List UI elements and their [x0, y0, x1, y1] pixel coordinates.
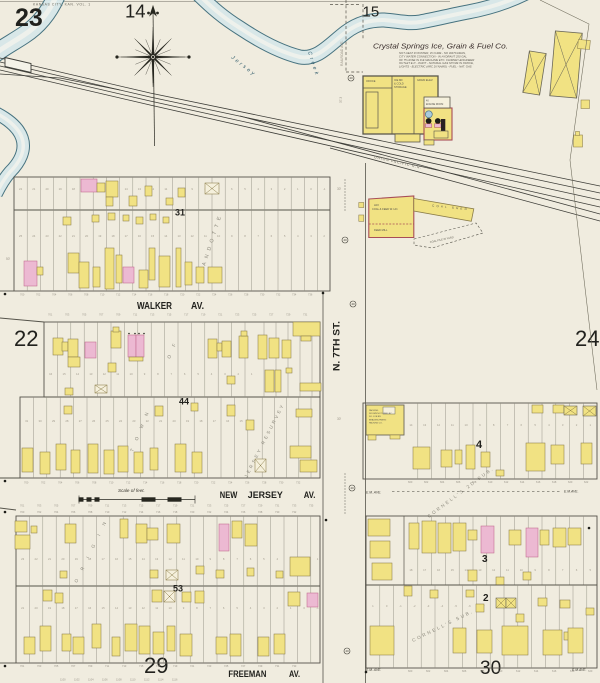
svg-text:3: 3 [482, 554, 488, 565]
svg-text:E.M.AVE.: E.M.AVE. [564, 490, 579, 494]
svg-text:718: 718 [177, 481, 182, 485]
svg-text:715: 715 [139, 504, 144, 508]
svg-text:710: 710 [100, 293, 105, 297]
svg-text:726: 726 [228, 293, 233, 297]
svg-text:Crystal Springs Ice, Grain & F: Crystal Springs Ice, Grain & Fuel Co. [373, 42, 508, 51]
svg-text:37.3: 37.3 [339, 97, 343, 103]
svg-text:1102: 1102 [74, 678, 80, 682]
svg-text:730: 730 [260, 293, 265, 297]
svg-text:22: 22 [14, 326, 38, 351]
svg-text:11: 11 [204, 234, 207, 238]
svg-text:711: 711 [105, 664, 110, 668]
svg-text:723: 723 [235, 313, 240, 317]
svg-text:600: 600 [408, 480, 413, 484]
svg-text:719: 719 [201, 313, 206, 317]
svg-text:17: 17 [125, 234, 129, 238]
svg-text:14: 14 [76, 372, 80, 376]
svg-text:ENGINE ROOM: ENGINE ROOM [426, 103, 443, 106]
svg-text:706: 706 [75, 481, 80, 485]
svg-text:FEED MILL: FEED MILL [374, 228, 388, 232]
svg-text:10: 10 [169, 606, 173, 610]
svg-text:11: 11 [116, 372, 119, 376]
svg-text:20: 20 [35, 606, 39, 610]
svg-text:716: 716 [160, 481, 165, 485]
svg-text:713: 713 [150, 313, 155, 317]
svg-text:15: 15 [451, 568, 455, 572]
svg-text:WALKER: WALKER [137, 301, 173, 312]
svg-text:19: 19 [75, 557, 79, 561]
svg-text:13: 13 [155, 557, 159, 561]
svg-text:731: 731 [303, 313, 308, 317]
svg-text:604: 604 [440, 480, 445, 484]
svg-text:30: 30 [39, 419, 43, 423]
svg-text:721: 721 [218, 313, 223, 317]
svg-text:734: 734 [292, 293, 297, 297]
svg-text:15: 15 [63, 372, 67, 376]
svg-text:701: 701 [20, 664, 25, 668]
svg-text:719: 719 [173, 504, 178, 508]
svg-text:728: 728 [258, 510, 263, 514]
svg-text:19: 19 [186, 419, 190, 423]
svg-text:31: 31 [25, 419, 29, 423]
svg-text:13: 13 [177, 234, 181, 238]
svg-text:711: 711 [133, 313, 138, 317]
svg-text:14: 14 [125, 1, 146, 22]
svg-text:18: 18 [409, 568, 413, 572]
svg-text:620: 620 [568, 480, 573, 484]
svg-text:700: 700 [20, 293, 25, 297]
svg-text:701: 701 [48, 313, 53, 317]
svg-text:712: 712 [126, 481, 131, 485]
svg-text:10: 10 [217, 234, 221, 238]
svg-text:FREEMAN: FREEMAN [228, 669, 266, 679]
svg-text:20: 20 [45, 187, 49, 191]
svg-text:705: 705 [54, 664, 59, 668]
svg-text:602: 602 [426, 669, 431, 673]
svg-text:24: 24 [32, 234, 36, 238]
svg-text:702: 702 [36, 293, 41, 297]
svg-text:18: 18 [72, 187, 76, 191]
svg-text:724: 724 [212, 293, 217, 297]
svg-text:727: 727 [241, 504, 246, 508]
svg-text:COAL & FEED W. HO.: COAL & FEED W. HO. [372, 207, 398, 211]
svg-text:13: 13 [138, 187, 142, 191]
svg-text:715: 715 [167, 313, 172, 317]
svg-text:732: 732 [296, 481, 301, 485]
svg-text:2: 2 [483, 593, 489, 604]
svg-text:714: 714 [132, 293, 137, 297]
svg-text:-5: -5 [454, 604, 457, 608]
svg-text:14: 14 [125, 187, 129, 191]
svg-text:710: 710 [109, 481, 114, 485]
svg-text:22: 22 [19, 187, 23, 191]
svg-text:729: 729 [286, 313, 291, 317]
svg-text:E.M.AVE.: E.M.AVE. [572, 668, 587, 672]
svg-text:N. 7TH ST.: N. 7TH ST. [332, 321, 342, 371]
svg-text:OFFICE: OFFICE [366, 79, 376, 83]
svg-text:27: 27 [79, 419, 83, 423]
svg-text:727: 727 [269, 313, 274, 317]
svg-text:14: 14 [142, 557, 146, 561]
svg-text:12: 12 [169, 557, 173, 561]
svg-text:723: 723 [207, 504, 212, 508]
svg-text:707: 707 [99, 313, 104, 317]
svg-text:618: 618 [552, 480, 557, 484]
svg-text:717: 717 [184, 313, 189, 317]
svg-text:15: 15 [128, 557, 132, 561]
svg-text:11: 11 [155, 606, 158, 610]
svg-text:17: 17 [102, 557, 106, 561]
svg-text:1100: 1100 [60, 678, 66, 682]
svg-text:722: 722 [211, 481, 216, 485]
svg-text:11: 11 [451, 423, 454, 427]
svg-text:730: 730 [275, 510, 280, 514]
svg-text:22: 22 [59, 234, 63, 238]
svg-text:715: 715 [139, 664, 144, 668]
svg-text:21: 21 [21, 606, 25, 610]
svg-text:ROOMS NOT USED BY: ROOMS NOT USED BY [369, 413, 392, 415]
svg-text:732: 732 [292, 510, 297, 514]
svg-text:710: 710 [105, 510, 110, 514]
svg-text:19: 19 [98, 234, 102, 238]
svg-text:616: 616 [552, 669, 557, 673]
svg-text:PACKING CO.: PACKING CO. [369, 421, 383, 424]
svg-text:721: 721 [190, 504, 195, 508]
svg-text:616: 616 [536, 480, 541, 484]
svg-text:23: 23 [21, 557, 25, 561]
svg-text:& COLD: & COLD [394, 81, 404, 85]
svg-text:718: 718 [164, 293, 169, 297]
svg-text:11: 11 [182, 557, 185, 561]
svg-text:12: 12 [191, 234, 195, 238]
svg-text:19: 19 [59, 187, 63, 191]
svg-text:1104: 1104 [88, 678, 94, 682]
svg-text:29: 29 [52, 419, 56, 423]
svg-text:12: 12 [103, 372, 107, 376]
svg-text:716: 716 [148, 293, 153, 297]
svg-text:14: 14 [409, 423, 413, 427]
svg-text:703: 703 [37, 664, 42, 668]
svg-text:11: 11 [506, 568, 509, 572]
svg-text:AV.: AV. [289, 669, 300, 679]
svg-text:705: 705 [82, 313, 87, 317]
svg-text:17: 17 [75, 606, 79, 610]
svg-text:726: 726 [241, 510, 246, 514]
svg-text:21: 21 [159, 419, 163, 423]
svg-text:10: 10 [465, 423, 469, 427]
svg-text:1116: 1116 [172, 678, 178, 682]
svg-text:735: 735 [309, 504, 314, 508]
svg-text:26: 26 [92, 419, 96, 423]
svg-text:709: 709 [116, 313, 121, 317]
svg-text:608: 608 [472, 480, 477, 484]
svg-text:728: 728 [244, 293, 249, 297]
svg-text:732: 732 [276, 293, 281, 297]
svg-text:725: 725 [224, 504, 229, 508]
svg-text:18: 18 [111, 234, 115, 238]
svg-text:733: 733 [292, 504, 297, 508]
svg-text:612: 612 [504, 480, 509, 484]
svg-text:AV.: AV. [304, 490, 316, 500]
svg-text:717: 717 [156, 664, 161, 668]
svg-text:1112: 1112 [144, 678, 150, 682]
svg-text:614: 614 [520, 480, 525, 484]
svg-text:30’: 30’ [337, 187, 342, 191]
svg-text:E.M. AVE.: E.M. AVE. [366, 668, 381, 672]
svg-text:40: 40 [350, 486, 354, 490]
svg-text:15: 15 [363, 4, 380, 21]
svg-text:JERSEY: JERSEY [248, 490, 283, 500]
svg-text:729: 729 [258, 664, 263, 668]
svg-text:736: 736 [308, 293, 313, 297]
svg-text:717: 717 [156, 504, 161, 508]
svg-text:707: 707 [71, 504, 76, 508]
svg-text:1114: 1114 [158, 678, 164, 682]
svg-text:712: 712 [116, 293, 121, 297]
svg-text:730: 730 [279, 481, 284, 485]
svg-text:40: 40 [343, 238, 347, 242]
svg-text:709: 709 [88, 664, 93, 668]
svg-text:13: 13 [128, 606, 132, 610]
svg-text:12: 12 [142, 606, 146, 610]
svg-text:44: 44 [179, 397, 189, 407]
svg-text:604: 604 [444, 669, 449, 673]
svg-text:729: 729 [258, 504, 263, 508]
svg-text:ICE MF: ICE MF [394, 78, 403, 82]
svg-text:HAY: HAY [374, 203, 379, 207]
svg-text:709: 709 [88, 504, 93, 508]
svg-text:716: 716 [156, 510, 161, 514]
svg-text:4: 4 [476, 439, 483, 451]
svg-text:702: 702 [37, 510, 42, 514]
svg-text:718: 718 [173, 510, 178, 514]
svg-text:13: 13 [423, 423, 427, 427]
svg-text:15: 15 [102, 606, 106, 610]
svg-text:719: 719 [173, 664, 178, 668]
svg-text:704: 704 [54, 510, 59, 514]
svg-text:-1: -1 [323, 187, 326, 191]
svg-text:708: 708 [88, 510, 93, 514]
svg-text:700: 700 [20, 510, 25, 514]
svg-text:712: 712 [122, 510, 127, 514]
svg-text:16: 16 [49, 372, 53, 376]
svg-text:12: 12 [437, 423, 441, 427]
svg-text:721: 721 [190, 664, 195, 668]
svg-text:731: 731 [275, 664, 280, 668]
svg-text:40: 40 [349, 76, 353, 80]
svg-text:18: 18 [61, 606, 65, 610]
svg-text:724: 724 [228, 481, 233, 485]
svg-text:SO. JOE BR.: SO. JOE BR. [369, 416, 382, 418]
svg-text:24: 24 [575, 326, 599, 351]
svg-text:21: 21 [32, 187, 36, 191]
svg-text:-2: -2 [413, 604, 416, 608]
svg-text:600: 600 [408, 669, 413, 673]
svg-text:30’: 30’ [337, 417, 342, 421]
svg-text:15: 15 [151, 234, 155, 238]
svg-text:614: 614 [534, 669, 539, 673]
svg-text:-3: -3 [427, 604, 430, 608]
svg-text:622: 622 [584, 480, 589, 484]
svg-text:28: 28 [65, 419, 69, 423]
svg-text:1110: 1110 [130, 678, 136, 682]
svg-text:25: 25 [106, 419, 110, 423]
svg-text:705: 705 [54, 504, 59, 508]
svg-text:NEW: NEW [220, 490, 238, 500]
svg-text:722: 722 [207, 510, 212, 514]
svg-text:720: 720 [194, 481, 199, 485]
svg-text:14: 14 [164, 234, 168, 238]
svg-text:24: 24 [119, 419, 123, 423]
svg-text:17: 17 [423, 568, 427, 572]
svg-text:Scale of feet.: Scale of feet. [118, 488, 145, 493]
svg-text:LIGHTS - ELECTRIC (ARC DYNAMO): LIGHTS - ELECTRIC (ARC DYNAMO) - FUEL - … [399, 65, 472, 69]
svg-text:16: 16 [88, 606, 92, 610]
svg-text:PACKING: PACKING [369, 409, 379, 412]
svg-text:20: 20 [85, 234, 89, 238]
svg-text:13: 13 [478, 568, 482, 572]
svg-text:21: 21 [48, 557, 52, 561]
svg-text:BRAUNSCHWEIG: BRAUNSCHWEIG [369, 418, 387, 421]
svg-text:10: 10 [195, 557, 199, 561]
svg-text:GRAIN ELEV.: GRAIN ELEV. [417, 78, 433, 82]
svg-text:706: 706 [71, 510, 76, 514]
svg-text:17: 17 [213, 419, 217, 423]
svg-text:731: 731 [275, 504, 280, 508]
svg-text:11: 11 [164, 187, 167, 191]
svg-text:30: 30 [480, 658, 501, 679]
svg-text:23: 23 [15, 4, 43, 32]
svg-text:16: 16 [115, 557, 119, 561]
svg-text:E.M. AVE.: E.M. AVE. [366, 491, 381, 495]
svg-text:610: 610 [498, 669, 503, 673]
svg-text:707: 707 [71, 664, 76, 668]
svg-text:602: 602 [424, 480, 429, 484]
svg-text:606: 606 [462, 669, 467, 673]
svg-text:723: 723 [207, 664, 212, 668]
svg-text:16: 16 [138, 234, 142, 238]
svg-text:704: 704 [52, 293, 57, 297]
svg-text:20: 20 [173, 419, 177, 423]
svg-text:728: 728 [262, 481, 267, 485]
svg-text:19: 19 [48, 606, 52, 610]
svg-text:714: 714 [143, 481, 148, 485]
svg-text:RAILROAD AVE.: RAILROAD AVE. [340, 40, 344, 66]
svg-text:1108: 1108 [116, 678, 122, 682]
svg-text:22: 22 [35, 557, 39, 561]
svg-text:720: 720 [180, 293, 185, 297]
svg-text:12: 12 [492, 568, 496, 572]
svg-text:15: 15 [240, 419, 244, 423]
svg-text:14: 14 [115, 606, 119, 610]
svg-text:711: 711 [105, 504, 110, 508]
svg-text:18: 18 [199, 419, 203, 423]
svg-text:40: 40 [351, 302, 355, 306]
svg-text:20: 20 [61, 557, 65, 561]
svg-text:23: 23 [132, 419, 136, 423]
svg-text:31: 31 [175, 208, 185, 218]
svg-text:620: 620 [588, 669, 593, 673]
svg-text:16: 16 [226, 419, 230, 423]
svg-text:722: 722 [196, 293, 201, 297]
svg-text:606: 606 [456, 480, 461, 484]
svg-text:704: 704 [58, 481, 63, 485]
svg-text:-4: -4 [441, 604, 444, 608]
svg-text:725: 725 [252, 313, 257, 317]
svg-text:720: 720 [190, 510, 195, 514]
svg-text:10: 10 [130, 372, 134, 376]
svg-text:726: 726 [245, 481, 250, 485]
svg-text:-1: -1 [399, 604, 402, 608]
svg-text:-6: -6 [468, 604, 471, 608]
svg-text:725: 725 [224, 664, 229, 668]
svg-text:713: 713 [122, 664, 127, 668]
svg-text:AV.: AV. [191, 301, 204, 312]
svg-text:713: 713 [122, 504, 127, 508]
svg-text:610: 610 [488, 480, 493, 484]
svg-text:701: 701 [20, 504, 25, 508]
svg-text:714: 714 [139, 510, 144, 514]
svg-text:10: 10 [520, 568, 524, 572]
svg-text:STORAGE: STORAGE [394, 85, 407, 89]
svg-text:708: 708 [84, 293, 89, 297]
svg-text:25: 25 [19, 234, 23, 238]
svg-text:727: 727 [241, 664, 246, 668]
svg-text:14: 14 [465, 568, 469, 572]
svg-text:608: 608 [480, 669, 485, 673]
svg-text:702: 702 [41, 481, 46, 485]
svg-text:13: 13 [89, 372, 93, 376]
svg-text:50’: 50’ [6, 257, 11, 261]
svg-text:708: 708 [92, 481, 97, 485]
svg-text:700: 700 [24, 481, 29, 485]
svg-text:40: 40 [345, 649, 349, 653]
svg-text:733: 733 [292, 664, 297, 668]
svg-text:703: 703 [65, 313, 70, 317]
svg-text:703: 703 [37, 504, 42, 508]
svg-text:1106: 1106 [102, 678, 108, 682]
svg-text:23: 23 [45, 234, 49, 238]
svg-text:706: 706 [68, 293, 73, 297]
svg-text:612: 612 [516, 669, 521, 673]
svg-text:16: 16 [437, 568, 441, 572]
svg-text:724: 724 [224, 510, 229, 514]
svg-text:21: 21 [72, 234, 76, 238]
